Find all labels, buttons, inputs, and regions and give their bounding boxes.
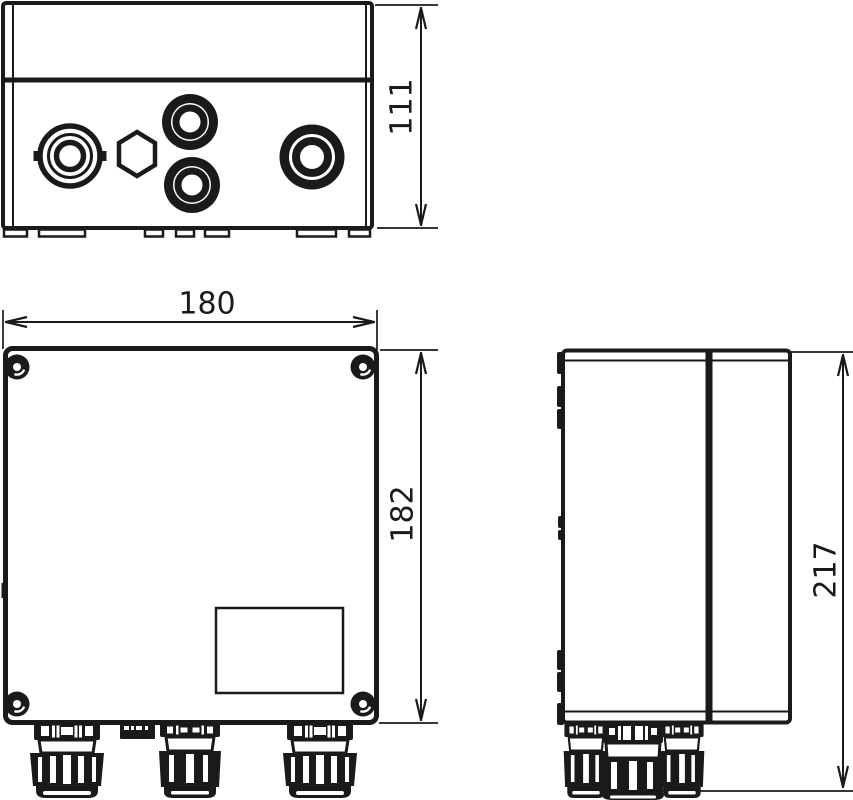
top-view-mounting-tabs [4, 230, 370, 237]
latch-tab [557, 352, 564, 374]
dimension-width: 180 [3, 287, 377, 351]
side-view-cable-glands [564, 723, 705, 800]
latch-tab [557, 386, 564, 407]
side-latch-nub [2, 583, 6, 598]
dimension-depth: 111 [375, 5, 438, 228]
mounting-tab [205, 230, 229, 237]
cable-gland-opening-right [280, 125, 345, 190]
latch-tab [557, 650, 564, 670]
cable-gland-side-far [660, 723, 705, 798]
mounting-tab [4, 230, 27, 237]
side-view-outline [563, 351, 790, 723]
technical-drawing-page: 111 [0, 0, 853, 800]
enclosure-three-view-drawing: 111 [0, 0, 853, 800]
corner-screw-bottom-right [351, 692, 376, 717]
latch-tab [557, 409, 564, 429]
mounting-tab [349, 230, 370, 237]
cable-gland-opening-middle-upper [162, 94, 218, 150]
corner-screw-top-left [5, 355, 30, 380]
latch-tab [558, 530, 564, 540]
latch-tab [558, 516, 564, 528]
front-view [2, 349, 377, 799]
dimension-value-height: 182 [386, 485, 421, 542]
dimension-value-depth: 111 [385, 78, 420, 135]
connector-block [120, 723, 155, 739]
cable-gland-side-front [601, 723, 665, 800]
latch-tab [557, 703, 564, 725]
side-view [557, 351, 790, 726]
corner-screw-top-right [351, 355, 376, 380]
dimension-height: 182 [379, 350, 438, 723]
dimension-value-width: 180 [178, 287, 235, 322]
dimension-value-total-height: 217 [809, 541, 844, 598]
mounting-tab [297, 230, 336, 237]
label-plate [216, 608, 343, 693]
mounting-tab [176, 230, 194, 237]
corner-screw-bottom-left [5, 692, 30, 717]
lid-split-edge [706, 352, 713, 722]
hex-knockout [119, 132, 155, 176]
latch-tab [557, 672, 564, 692]
top-view [3, 3, 372, 237]
mounting-tab [39, 230, 85, 237]
cable-gland-front-middle [159, 723, 221, 798]
cable-gland-opening-middle-lower [164, 157, 220, 213]
mounting-tab [145, 230, 163, 237]
cable-gland-front-left [30, 723, 104, 798]
cable-gland-front-right [283, 723, 357, 798]
